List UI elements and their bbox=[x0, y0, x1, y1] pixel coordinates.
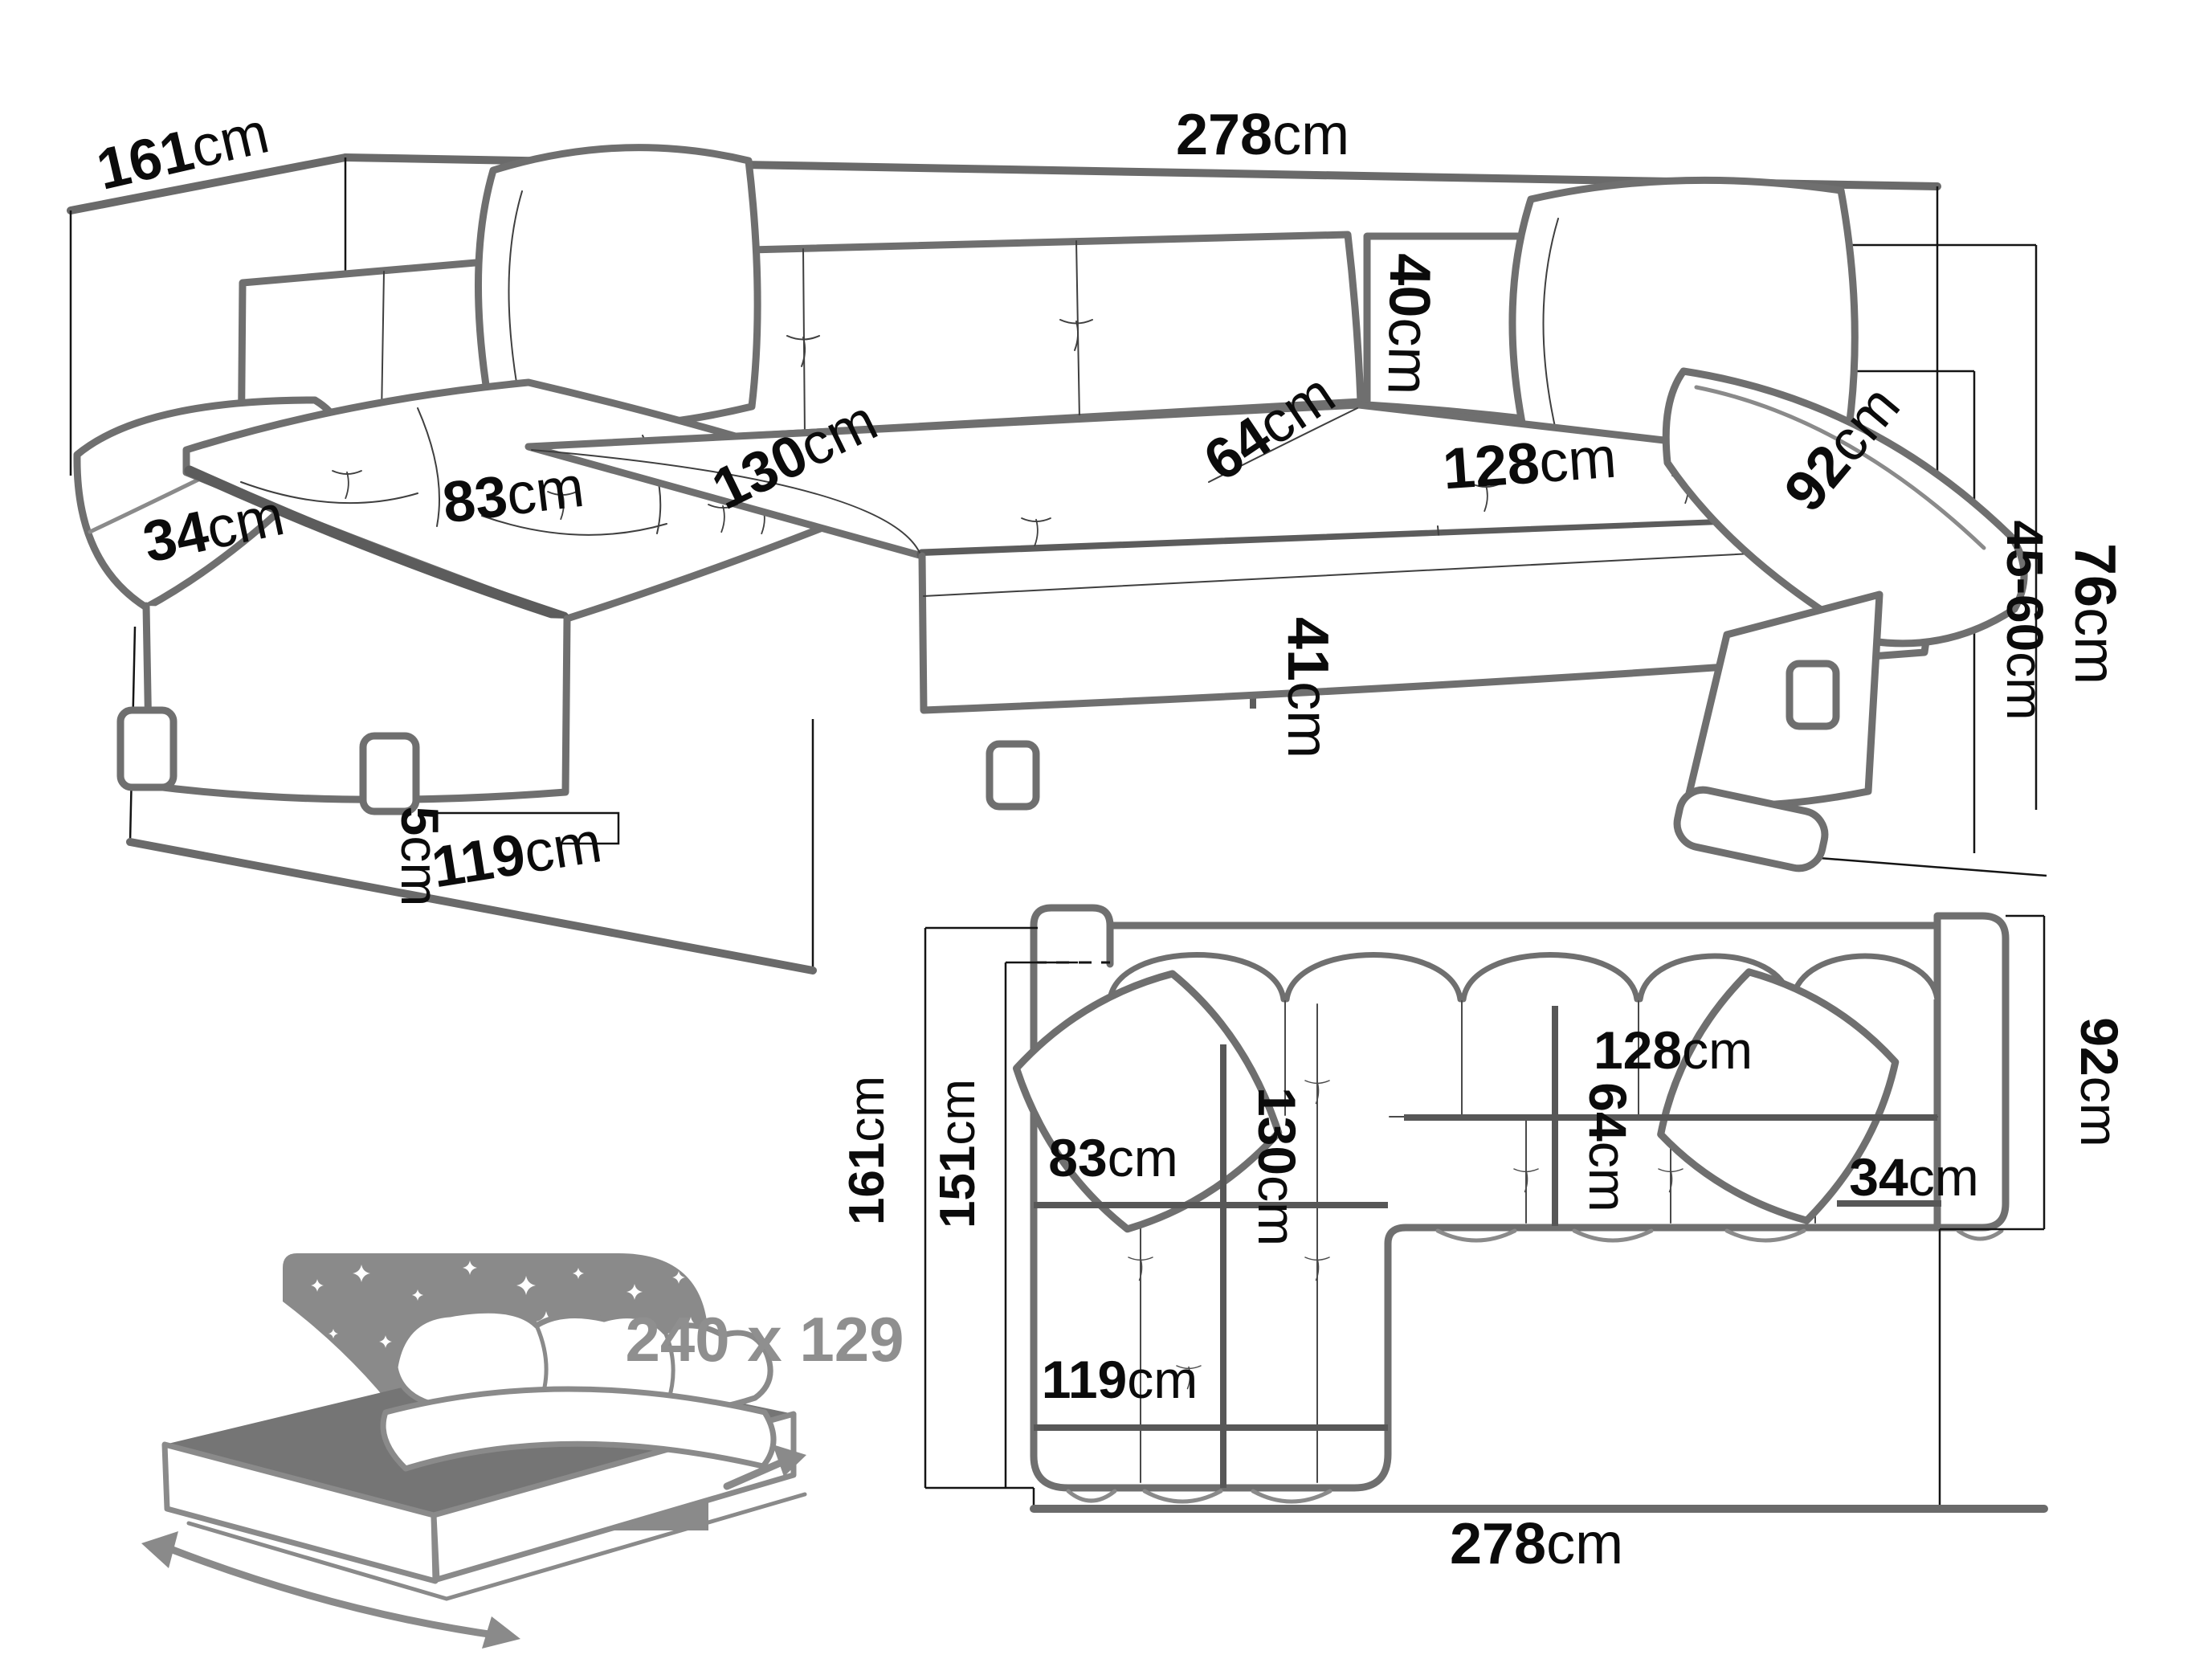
chaise-base bbox=[146, 606, 567, 799]
label-backrest-40: 40cm bbox=[1375, 253, 1442, 395]
label-total-height-76: 76cm bbox=[2063, 543, 2127, 684]
perspective-sofa-sketch bbox=[77, 148, 2024, 873]
sofa-dimension-diagram: 278cm 161cm 40cm 64cm 128cm 130cm 83cm 3… bbox=[0, 0, 2212, 1659]
diagram-canvas: 278cm 161cm 40cm 64cm 128cm 130cm 83cm 3… bbox=[0, 0, 2212, 1659]
plan-label-seat-depth-64: 64cm bbox=[1578, 1082, 1638, 1212]
label-width-278: 278cm bbox=[1176, 103, 1349, 167]
plan-label-chaise-front-119: 119cm bbox=[1042, 1350, 1198, 1409]
plan-label-chaise-length-130: 130cm bbox=[1247, 1087, 1307, 1246]
label-seat-width-128: 128cm bbox=[1441, 426, 1618, 502]
sofa-leg bbox=[363, 736, 416, 811]
plan-left-arm-cap bbox=[1034, 908, 1110, 964]
plan-label-chaise-width-83: 83cm bbox=[1048, 1128, 1177, 1187]
label-seat-height-45-60: 45-60cm bbox=[1996, 521, 2054, 721]
sofa-leg bbox=[990, 744, 1036, 807]
sofa-leg bbox=[120, 710, 173, 787]
perspective-view: 278cm 161cm 40cm 64cm 128cm 130cm 83cm 3… bbox=[71, 100, 2127, 970]
sleeping-function-icon: 240 x 129 bbox=[141, 1253, 904, 1649]
plan-backrest-cushions bbox=[1110, 955, 1937, 1000]
label-chaise-front-119: 119cm bbox=[427, 810, 606, 900]
plan-view: 161cm 151cm 130cm 64cm 83cm 119cm 128cm … bbox=[839, 908, 2129, 1576]
plan-label-arm-length-92: 92cm bbox=[2070, 1017, 2129, 1146]
plan-label-depth-151: 151cm bbox=[930, 1079, 986, 1228]
plan-label-arm-width-34: 34cm bbox=[1849, 1147, 1978, 1207]
label-base-height-41: 41cm bbox=[1275, 617, 1340, 758]
plan-label-seat-width-128: 128cm bbox=[1594, 1020, 1753, 1080]
sleeping-area-label: 240 x 129 bbox=[625, 1304, 904, 1375]
plan-label-depth-161: 161cm bbox=[839, 1076, 895, 1225]
plan-label-width-278: 278cm bbox=[1450, 1512, 1623, 1576]
sofa-leg bbox=[1790, 664, 1836, 726]
